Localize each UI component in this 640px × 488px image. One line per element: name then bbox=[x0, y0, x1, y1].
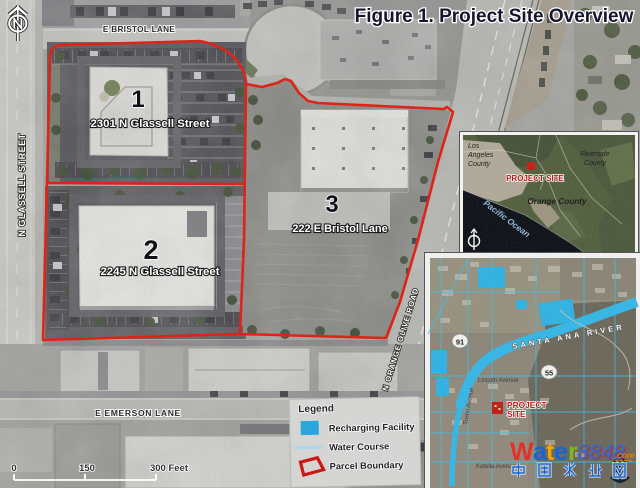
svg-text:Recharging Facility: Recharging Facility bbox=[329, 422, 416, 434]
svg-text:300 Feet: 300 Feet bbox=[150, 463, 189, 474]
svg-text:3: 3 bbox=[325, 191, 338, 218]
svg-text:Parcel Boundary: Parcel Boundary bbox=[329, 460, 404, 472]
svg-text:.com: .com bbox=[615, 450, 635, 460]
svg-text:Figure 1. Project Site Overvie: Figure 1. Project Site Overview bbox=[355, 6, 634, 27]
svg-text:2: 2 bbox=[143, 235, 158, 265]
svg-text:0: 0 bbox=[11, 463, 16, 474]
svg-text:222 E Bristol Lane: 222 E Bristol Lane bbox=[292, 223, 387, 235]
svg-text:2301 N Glassell Street: 2301 N Glassell Street bbox=[90, 118, 209, 130]
svg-text:1: 1 bbox=[131, 86, 144, 113]
svg-text:W: W bbox=[510, 438, 534, 466]
svg-text:2245 N Glassell Street: 2245 N Glassell Street bbox=[100, 266, 219, 278]
svg-text:N GLASSELL STREET: N GLASSELL STREET bbox=[17, 133, 27, 236]
svg-text:Water Course: Water Course bbox=[329, 441, 389, 452]
svg-text:150: 150 bbox=[79, 463, 95, 474]
svg-text:Legend: Legend bbox=[298, 403, 334, 415]
svg-text:E BRISTOL LANE: E BRISTOL LANE bbox=[103, 25, 175, 34]
svg-text:E EMERSON LANE: E EMERSON LANE bbox=[95, 408, 181, 418]
svg-text:e: e bbox=[554, 438, 568, 466]
